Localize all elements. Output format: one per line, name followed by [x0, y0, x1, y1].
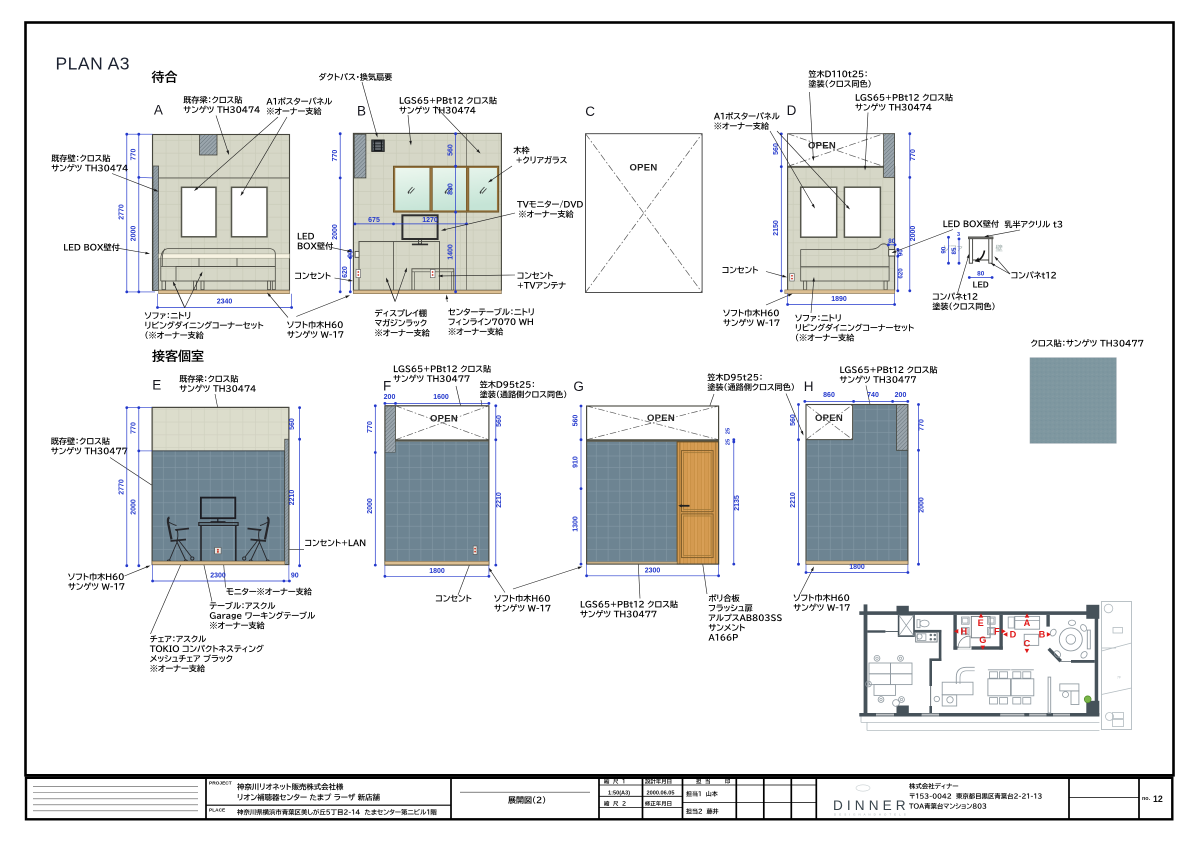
svg-text:G: G — [573, 379, 584, 394]
svg-text:OPEN: OPEN — [430, 414, 458, 425]
svg-text:2150: 2150 — [773, 220, 780, 236]
svg-text:PLAN A3: PLAN A3 — [56, 54, 131, 74]
svg-text:770: 770 — [131, 422, 138, 434]
svg-text:DINNER: DINNER — [833, 798, 910, 813]
svg-text:no.: no. — [1142, 796, 1151, 802]
svg-text:2000: 2000 — [367, 498, 374, 514]
svg-text:D E S I G N A N D H O T E: D E S I G N A N D H O T E L S — [834, 813, 907, 817]
svg-text:12: 12 — [1153, 794, 1163, 804]
svg-text:200: 200 — [384, 394, 396, 401]
svg-text:25: 25 — [726, 438, 732, 445]
svg-text:860: 860 — [823, 392, 835, 399]
svg-text:1800: 1800 — [429, 568, 445, 575]
svg-text:2300: 2300 — [210, 573, 226, 580]
svg-text:OPEN: OPEN — [629, 163, 657, 174]
svg-text:1800: 1800 — [849, 564, 865, 571]
svg-text:85: 85 — [951, 247, 958, 254]
svg-text:C: C — [585, 104, 595, 119]
svg-text:770: 770 — [919, 419, 926, 431]
svg-text:F: F — [383, 378, 391, 393]
svg-text:1400: 1400 — [448, 244, 455, 260]
svg-text:3: 3 — [957, 232, 960, 238]
svg-text:830: 830 — [448, 183, 455, 195]
svg-text:2000: 2000 — [910, 226, 917, 242]
svg-text:560: 560 — [773, 143, 780, 155]
svg-text:200: 200 — [895, 392, 907, 399]
svg-text:620: 620 — [897, 268, 904, 279]
svg-text:2000: 2000 — [919, 497, 926, 513]
svg-text:90: 90 — [941, 246, 948, 253]
svg-text:910: 910 — [573, 456, 580, 468]
svg-text:2000.06.05: 2000.06.05 — [647, 790, 675, 796]
svg-text:1270: 1270 — [422, 217, 438, 224]
svg-text:90: 90 — [897, 249, 904, 256]
svg-text:7F: 7F — [1117, 676, 1121, 680]
svg-text:PROJECT: PROJECT — [209, 781, 232, 787]
svg-text:620: 620 — [342, 266, 349, 278]
svg-text:H: H — [804, 379, 814, 394]
svg-text:E: E — [152, 377, 161, 392]
svg-text:2300: 2300 — [645, 567, 661, 574]
svg-text:1300: 1300 — [573, 516, 580, 532]
svg-text:LED: LED — [973, 281, 989, 290]
svg-text:560: 560 — [573, 415, 580, 427]
svg-text:2210: 2210 — [289, 490, 296, 506]
svg-text:2135: 2135 — [734, 495, 741, 511]
svg-text:1600: 1600 — [433, 394, 449, 401]
svg-text:OPEN: OPEN — [647, 413, 675, 424]
svg-text:560: 560 — [790, 414, 797, 426]
svg-text:80: 80 — [977, 271, 985, 278]
svg-text:80: 80 — [888, 238, 895, 245]
svg-text:2210: 2210 — [496, 492, 503, 508]
svg-text:PLACE: PLACE — [209, 808, 226, 814]
svg-text:2000: 2000 — [131, 499, 138, 515]
svg-text:2000: 2000 — [131, 226, 138, 242]
svg-text:B: B — [357, 104, 366, 119]
svg-text:675: 675 — [368, 217, 380, 224]
svg-text:2210: 2210 — [790, 492, 797, 508]
svg-text:A: A — [154, 102, 163, 117]
svg-text:G: G — [979, 635, 986, 645]
svg-text:F: F — [994, 627, 1000, 637]
svg-text:1:50(A3): 1:50(A3) — [608, 790, 630, 796]
svg-text:560: 560 — [289, 418, 296, 430]
svg-text:560: 560 — [448, 144, 455, 156]
svg-text:E: E — [978, 618, 984, 628]
svg-text:560: 560 — [496, 415, 503, 427]
svg-text:D: D — [1010, 630, 1017, 640]
svg-text:770: 770 — [367, 421, 374, 433]
svg-text:740: 740 — [867, 392, 879, 399]
svg-text:2770: 2770 — [119, 479, 126, 495]
svg-text:90: 90 — [291, 573, 299, 580]
svg-text:B: B — [1039, 630, 1046, 640]
svg-text:2000: 2000 — [332, 224, 339, 240]
svg-text:A: A — [1024, 618, 1031, 628]
svg-text:770: 770 — [131, 149, 138, 161]
svg-text:1890: 1890 — [831, 296, 847, 303]
svg-text:25: 25 — [726, 427, 732, 434]
svg-text:D: D — [787, 103, 797, 118]
svg-text:2340: 2340 — [217, 298, 233, 305]
svg-text:OPEN: OPEN — [815, 413, 843, 424]
svg-text:770: 770 — [910, 149, 917, 161]
svg-text:2770: 2770 — [119, 204, 126, 220]
svg-text:H: H — [960, 627, 967, 637]
svg-text:770: 770 — [332, 150, 339, 162]
svg-text:C: C — [1024, 638, 1031, 648]
